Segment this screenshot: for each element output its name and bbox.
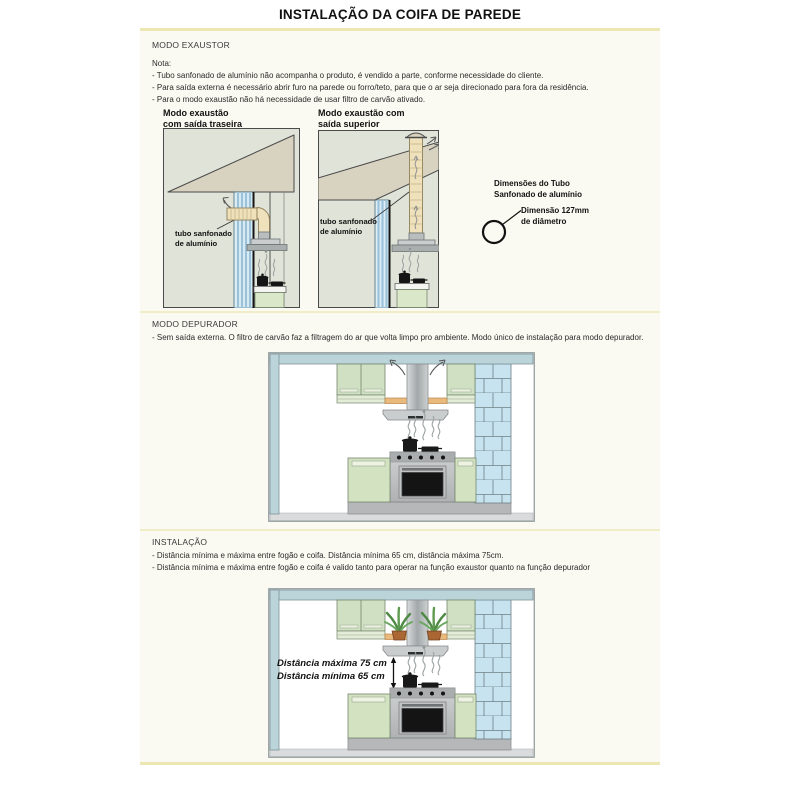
note-bullet: - Para o modo exaustão não há necessidad… <box>152 94 425 106</box>
stove <box>390 452 455 502</box>
aluminum-tube <box>410 136 423 233</box>
manual-page: INSTALAÇÃO DA COIFA DE PAREDE MODO EXAUS… <box>0 0 800 800</box>
content-panel: MODO EXAUSTOR Nota: - Tubo sanfonado de … <box>140 28 660 765</box>
instalacao-bullet: - Distância mínima e máxima entre fogão … <box>152 562 590 574</box>
tube-label-top: tubo sanfonado de alumínio <box>320 217 377 236</box>
section-divider <box>140 529 660 531</box>
distance-max-label: Distância máxima 75 cm <box>277 657 387 670</box>
stove <box>395 284 429 308</box>
ceiling <box>270 590 533 600</box>
exaustor-heading: MODO EXAUSTOR <box>152 40 230 50</box>
brick-wall <box>475 600 511 739</box>
page-title: INSTALAÇÃO DA COIFA DE PAREDE <box>0 7 800 22</box>
depurador-heading: MODO DEPURADOR <box>152 319 238 329</box>
left-wall <box>270 354 279 514</box>
oven <box>399 466 446 498</box>
note-bullet: - Tubo sanfonado de alumínio não acompan… <box>152 70 543 82</box>
section-divider <box>140 311 660 313</box>
stove <box>390 688 455 738</box>
distance-labels: Distância máxima 75 cm Distância mínima … <box>277 657 387 683</box>
brick-wall <box>475 364 511 503</box>
tube-dimensions-heading: Dimensões do Tubo Sanfonado de alumínio <box>494 179 582 200</box>
depurador-bullet: - Sem saída externa. O filtro de carvão … <box>152 332 643 344</box>
note-bullet: - Para saída externa é necessário abrir … <box>152 82 589 94</box>
diagram-top-title: Modo exaustão com saída superior <box>318 108 405 129</box>
stove <box>254 287 286 308</box>
oven <box>399 702 446 734</box>
instalacao-bullet: - Distância mínima e máxima entre fogão … <box>152 550 504 562</box>
instalacao-heading: INSTALAÇÃO <box>152 537 207 547</box>
distance-min-label: Distância mínima 65 cm <box>277 670 387 683</box>
plinth <box>348 738 511 750</box>
plinth <box>348 502 511 514</box>
kitchen-depurador-illustration <box>268 352 535 522</box>
diagram-rear-title: Modo exaustão com saída traseira <box>163 108 242 129</box>
tube-label-rear: tubo sanfonado de alumínio <box>175 229 232 248</box>
tube-dimension-label: Dimensão 127mm de diâmetro <box>521 206 589 227</box>
diagram-rear-illustration <box>163 128 300 308</box>
note-label: Nota: <box>152 58 171 70</box>
ceiling <box>270 354 533 364</box>
hood-duct <box>407 364 428 410</box>
